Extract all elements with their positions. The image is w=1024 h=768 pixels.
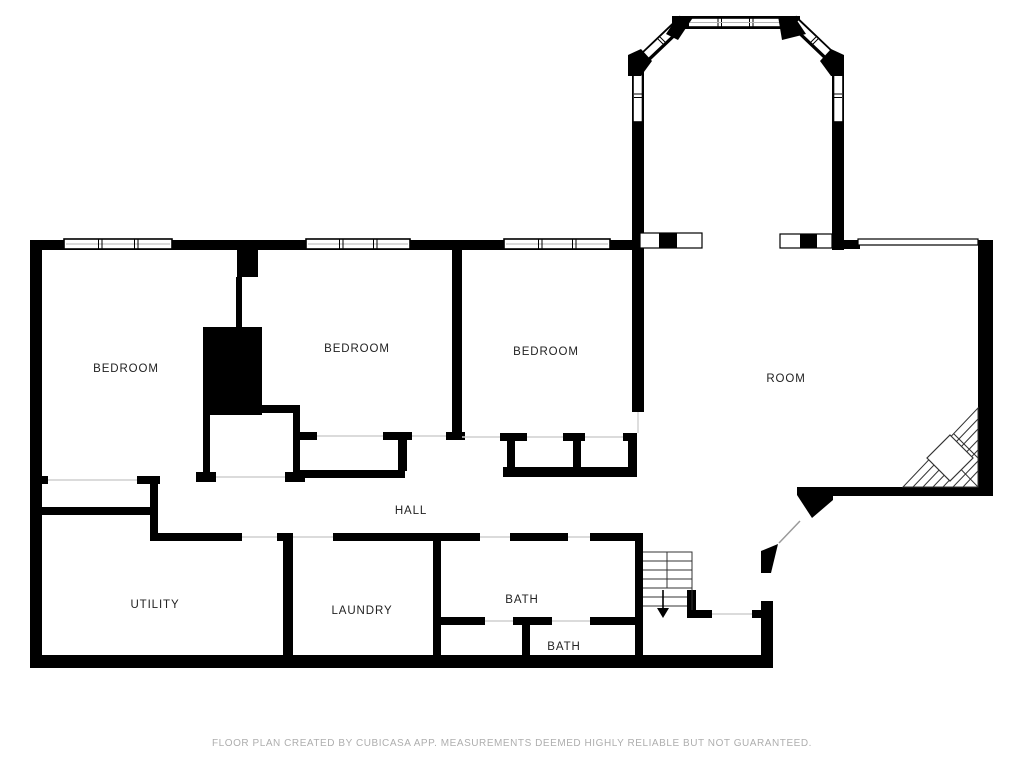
opening-bar-right-block	[800, 234, 817, 248]
wall-bedroom3-south-2	[563, 433, 585, 441]
wall-bath-low-1	[440, 617, 485, 625]
stairs-icon	[643, 552, 692, 618]
wall-diagonal-wedge	[761, 544, 778, 573]
wall-laundry-top	[333, 533, 440, 541]
wall-bedroom2-south-1	[300, 432, 317, 440]
bay-window-right	[834, 70, 844, 122]
diagonal-door-line	[779, 521, 800, 543]
wall-bath1-top-1	[438, 533, 480, 541]
wall-bottom	[30, 655, 773, 668]
wall-bedroom3-closet-div-2	[573, 441, 581, 468]
room-label-bath-1: BATH	[505, 594, 538, 606]
wall-bedroom-divider-foot	[446, 432, 465, 440]
room-label-bedroom-1: BEDROOM	[93, 363, 159, 375]
room-label-laundry: LAUNDRY	[331, 605, 392, 617]
wall-bedroom2-closet-right	[398, 440, 407, 471]
wall-chimney-stem	[236, 277, 242, 328]
room-top-openings	[640, 233, 978, 248]
wall-stair-bottom	[687, 610, 712, 618]
opening-bar-left-block	[659, 233, 677, 248]
wall-bath2-left	[522, 625, 530, 655]
wall-bedroom3-closet-div-1	[507, 441, 515, 468]
wall-bath-low-3	[590, 617, 635, 625]
wall-bedroom2-south-2	[383, 432, 412, 440]
footer-disclaimer: FLOOR PLAN CREATED BY CUBICASA APP. MEAS…	[212, 738, 812, 749]
wall-hall-south-1	[152, 533, 242, 541]
wall-room-diagonal	[797, 487, 833, 518]
room-label-bath-2: BATH	[547, 641, 580, 653]
room-label-utility: UTILITY	[130, 599, 179, 611]
wall-utility-right	[150, 479, 158, 541]
wall-bedroom1-south-stub	[30, 476, 48, 484]
room-thin-wall	[858, 239, 978, 245]
wall-bath-right	[635, 533, 643, 655]
room-label-bedroom-2: BEDROOM	[324, 343, 390, 355]
window	[306, 239, 410, 249]
wall-room-right	[978, 240, 993, 496]
bay-window	[628, 16, 844, 250]
wall-bedroom2-closet-bottom	[298, 470, 405, 478]
room-label-room: ROOM	[766, 373, 805, 385]
room-label-hall: HALL	[395, 505, 427, 517]
bay-window-left	[633, 70, 643, 122]
wall-bath1-top-2	[510, 533, 568, 541]
top-wall-windows	[64, 239, 610, 249]
floor-plan-canvas: BEDROOM BEDROOM BEDROOM ROOM HALL UTILIT…	[0, 0, 1024, 768]
wall-bedroom3-vestibule-bottom	[503, 467, 637, 477]
room-label-bedroom-3: BEDROOM	[513, 346, 579, 358]
wall-bedroom-divider	[452, 248, 462, 432]
wall-room-left	[632, 248, 644, 412]
wall-bath-low-2	[513, 617, 552, 625]
floor-plan-drawing: BEDROOM BEDROOM BEDROOM ROOM HALL UTILIT…	[0, 0, 1024, 768]
wall-left	[30, 240, 42, 668]
window	[504, 239, 610, 249]
wall-closet-top	[262, 405, 300, 413]
wall-room-bottom	[813, 487, 993, 496]
wall-stair-stub	[752, 610, 765, 618]
wall-utility-top	[30, 507, 152, 515]
wall-closet-foot-left	[196, 472, 216, 482]
wall-laundry-left	[283, 533, 293, 662]
window	[64, 239, 172, 249]
chimney-block	[203, 327, 262, 415]
wall-closet-left	[203, 413, 210, 475]
wall-laundry-right	[433, 533, 441, 662]
stairs-down-arrow-head	[657, 608, 669, 618]
wall-closet-right	[293, 413, 300, 474]
room-labels: BEDROOM BEDROOM BEDROOM ROOM HALL UTILIT…	[93, 343, 806, 653]
wall-bedroom3-south-1	[500, 433, 527, 441]
wall-chimney-top	[237, 248, 258, 277]
